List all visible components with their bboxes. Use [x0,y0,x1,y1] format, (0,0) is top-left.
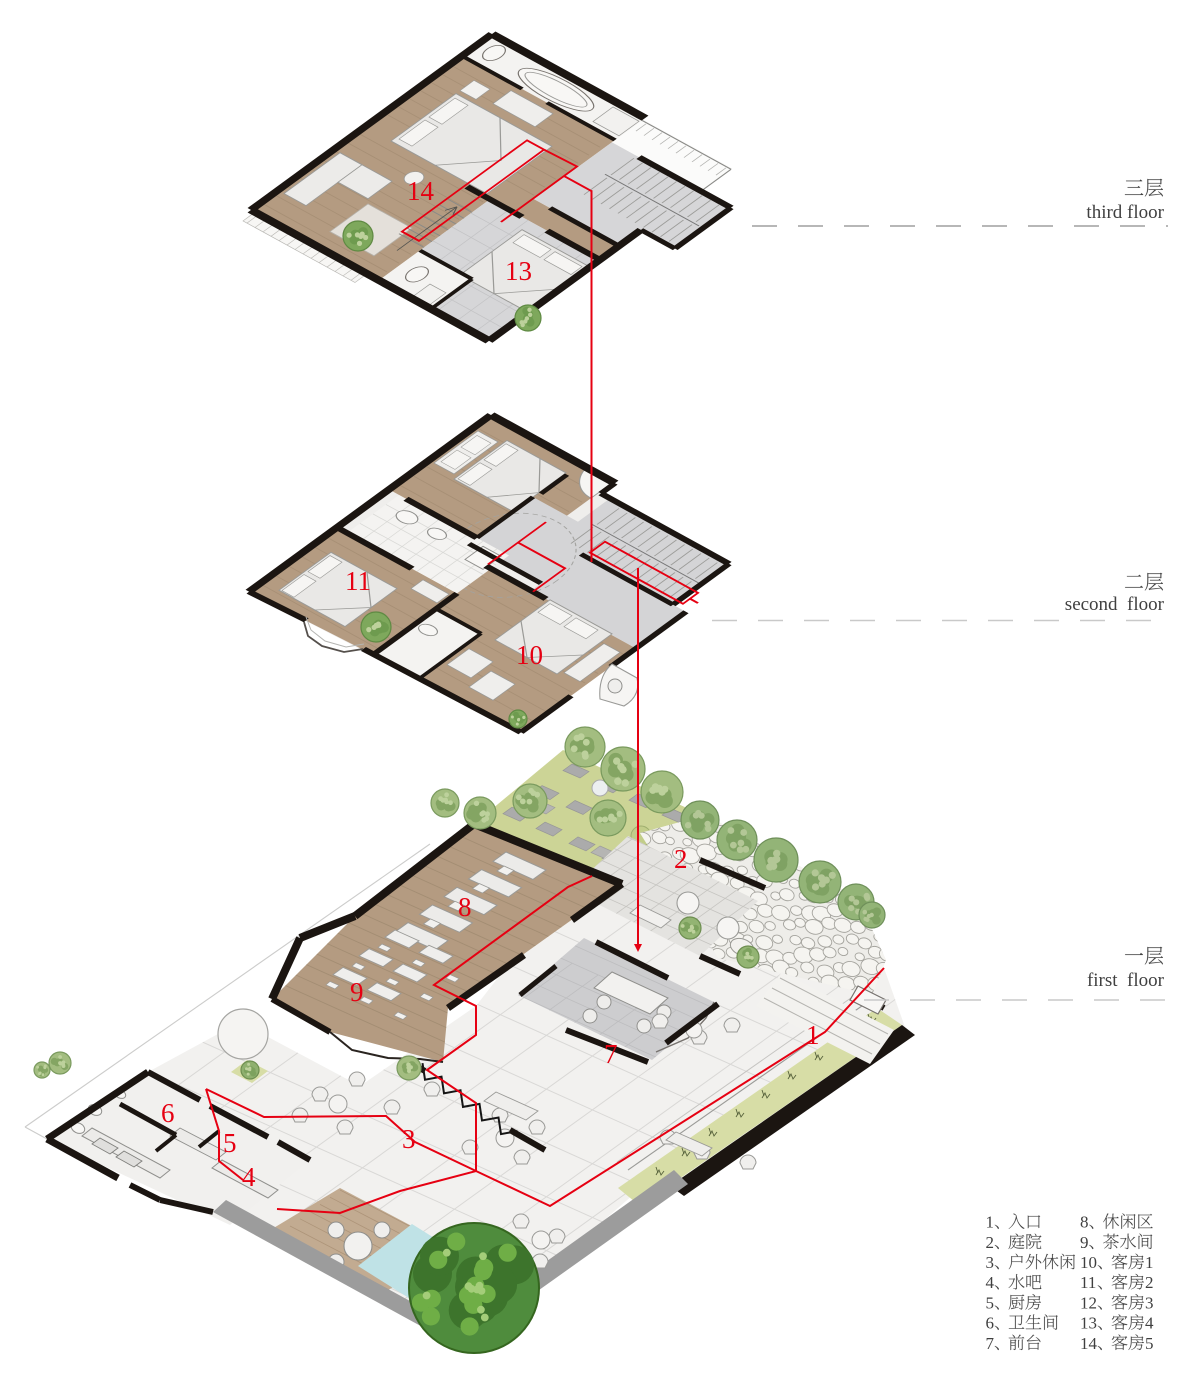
svg-text:6: 6 [161,1098,175,1128]
svg-text:3: 3 [402,1124,416,1154]
svg-text:first floor: first floor [1087,970,1165,991]
svg-text:5: 5 [223,1128,237,1158]
svg-text:1: 1 [1145,1253,1154,1272]
svg-text:8: 8 [1080,1213,1089,1232]
svg-text:7: 7 [604,1039,618,1069]
svg-text:6: 6 [986,1314,995,1333]
svg-text:2: 2 [674,844,688,874]
svg-text:2: 2 [1145,1273,1154,1292]
svg-text:14: 14 [407,176,435,206]
svg-text:11: 11 [345,566,371,596]
svg-text:12: 12 [1080,1293,1097,1312]
svg-text:11: 11 [1080,1273,1096,1292]
svg-text:14: 14 [1080,1334,1098,1353]
svg-text:2: 2 [986,1233,995,1252]
svg-text:10: 10 [516,640,543,670]
svg-text:9: 9 [1080,1233,1089,1252]
svg-text:4: 4 [242,1162,256,1192]
svg-text:3: 3 [986,1253,995,1272]
svg-text:7: 7 [986,1334,995,1353]
svg-text:8: 8 [458,892,472,922]
svg-text:second floor: second floor [1065,594,1165,615]
svg-text:13: 13 [1080,1314,1097,1333]
svg-text:4: 4 [986,1273,995,1292]
svg-text:3: 3 [1145,1293,1154,1312]
svg-text:9: 9 [350,977,364,1007]
svg-text:third floor: third floor [1086,202,1164,223]
svg-text:1: 1 [806,1020,820,1050]
svg-text:5: 5 [1145,1334,1154,1353]
svg-text:4: 4 [1145,1314,1154,1333]
svg-text:10: 10 [1080,1253,1097,1272]
svg-text:1: 1 [986,1213,995,1232]
svg-text:5: 5 [986,1293,995,1312]
svg-text:13: 13 [505,256,532,286]
